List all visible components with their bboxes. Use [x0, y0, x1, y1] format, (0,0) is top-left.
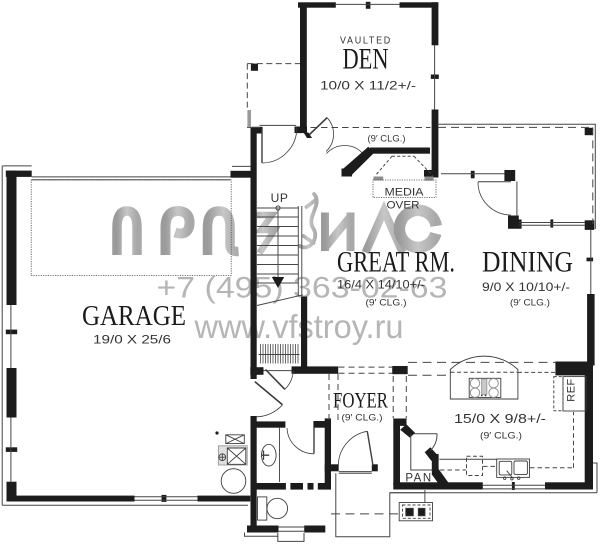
svg-text:UP: UP	[271, 191, 289, 205]
svg-text:GREAT RM.: GREAT RM.	[337, 246, 455, 279]
svg-text:10/0 X 11/2+/-: 10/0 X 11/2+/-	[320, 79, 416, 93]
svg-text:(9′ CLG.): (9′ CLG.)	[510, 298, 550, 309]
svg-text:DINING: DINING	[482, 246, 573, 279]
svg-text:DEN: DEN	[343, 43, 389, 76]
svg-text:(9′ CLG.): (9′ CLG.)	[368, 134, 406, 145]
svg-text:PAN: PAN	[405, 473, 432, 485]
svg-text:16/4 X 14/10+/-: 16/4 X 14/10+/-	[337, 278, 425, 292]
svg-text:www.vfstroy.ru: www.vfstroy.ru	[194, 309, 404, 346]
svg-text:GARAGE: GARAGE	[82, 300, 186, 332]
svg-text:REF: REF	[566, 378, 578, 402]
svg-text:9/0 X 10/10+/-: 9/0 X 10/10+/-	[482, 280, 570, 294]
svg-text:19/0 X 25/6: 19/0 X 25/6	[93, 333, 171, 347]
svg-text:15/0 X 9/8+/-: 15/0 X 9/8+/-	[454, 411, 546, 426]
svg-text:MEDIA: MEDIA	[385, 187, 425, 199]
svg-text:FOYER: FOYER	[333, 388, 388, 413]
svg-text:(9′ CLG.): (9′ CLG.)	[342, 413, 383, 424]
svg-text:OVER: OVER	[387, 200, 420, 212]
svg-text:(9′ CLG.): (9′ CLG.)	[366, 298, 407, 309]
svg-text:(9′ CLG.): (9′ CLG.)	[480, 431, 522, 442]
